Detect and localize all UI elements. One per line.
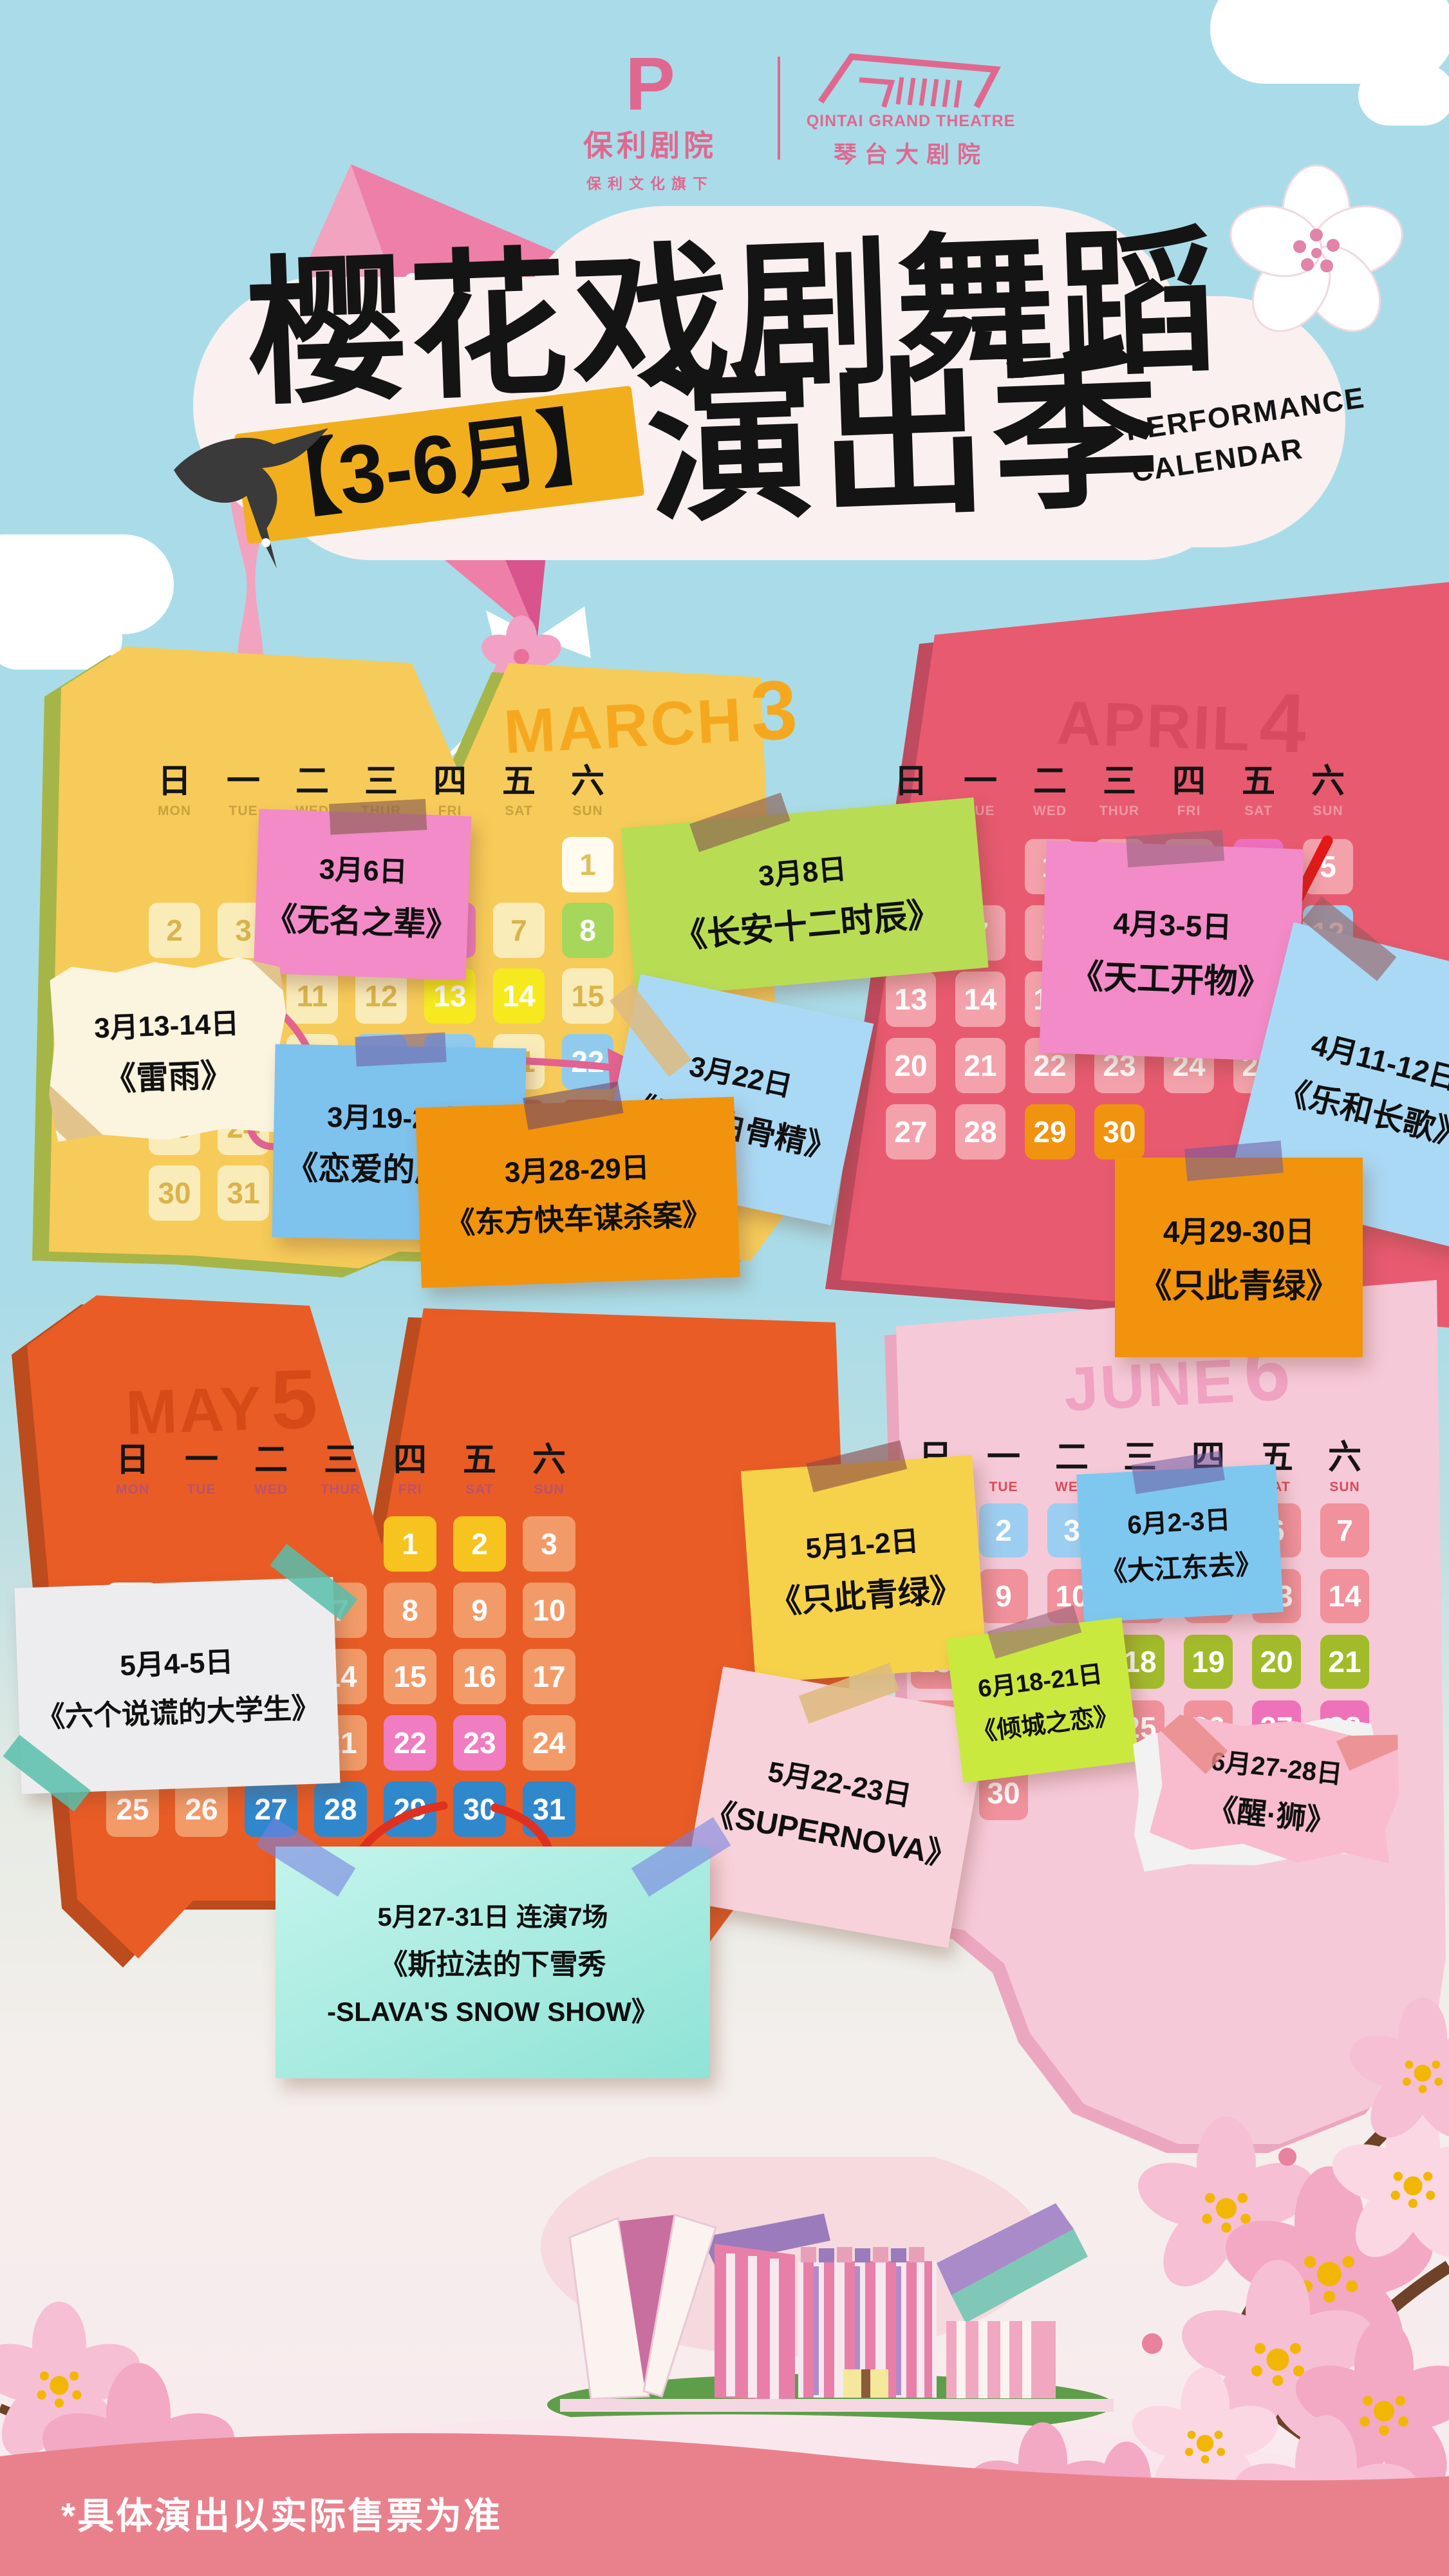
tape-strip <box>329 799 427 835</box>
event-title: 《只此青绿》 <box>1138 1259 1339 1307</box>
footer-disclaimer: *具体演出以实际售票为准 <box>61 2487 502 2539</box>
tape-strip <box>987 1605 1082 1659</box>
event-title: 《雷雨》 <box>103 1049 233 1100</box>
tape-strip <box>256 1817 356 1897</box>
event-date: 5月1-2日 <box>804 1518 920 1566</box>
event-note-e-apr-1: 4月3-5日《天工开物》 <box>1039 840 1304 1062</box>
event-title: 《东方快车谋杀案》 <box>445 1191 713 1243</box>
event-title: 《醒·狮》 <box>1206 1785 1338 1840</box>
event-date: 5月4-5日 <box>119 1639 234 1684</box>
event-title: 《六个说谎的大学生》 <box>36 1684 321 1735</box>
event-title: 《只此青绿》 <box>768 1564 964 1624</box>
event-date: 4月3-5日 <box>1112 899 1232 946</box>
tape-strip <box>689 793 790 852</box>
event-note-e-may-2: 5月4-5日《六个说谎的大学生》 <box>15 1577 341 1794</box>
event-note-e-jun-1: 6月2-3日《大江东去》 <box>1076 1464 1284 1622</box>
event-date: 6月27-28日 <box>1210 1740 1345 1791</box>
event-title: 《倾城之恋》 <box>970 1695 1120 1748</box>
tape-strip <box>1302 896 1397 981</box>
tape-strip <box>1126 830 1224 867</box>
poster: P 保利剧院 保利文化旗下 QINTAI GRAND THEATRE 琴台大剧院 <box>0 0 1449 2576</box>
event-date: 6月18-21日 <box>976 1653 1105 1704</box>
event-title: 《天工开物》 <box>1069 948 1271 1004</box>
event-note-e-apr-3: 4月29-30日《只此青绿》 <box>1115 1158 1363 1357</box>
event-note-e-mar-6: 3月28-29日《东方快车谋杀案》 <box>415 1096 740 1288</box>
event-note-e-mar-1: 3月6日《无名之辈》 <box>254 809 472 980</box>
event-note-e-mar-3: 3月13-14日《雷雨》 <box>42 954 293 1145</box>
event-date: 4月29-30日 <box>1163 1208 1314 1251</box>
event-date: 5月27-31日 连演7场 <box>378 1896 608 1933</box>
event-date: 3月6日 <box>319 845 408 890</box>
event-title: 《长安十二时辰》 <box>671 887 942 958</box>
event-date: 3月8日 <box>756 845 848 894</box>
event-note-e-mar-2: 3月8日《长安十二时辰》 <box>621 798 988 999</box>
event-note-e-jun-2: 6月18-21日《倾城之恋》 <box>946 1617 1139 1783</box>
tape-strip <box>1336 1702 1437 1771</box>
event-title: 《斯拉法的下雪秀 <box>380 1941 606 1982</box>
tape-strip <box>270 1544 357 1621</box>
event-note-e-may-3: 5月22-23日《SUPERNOVA》 <box>682 1666 989 1948</box>
event-date: 3月13-14日 <box>93 1000 239 1046</box>
tape-strip <box>523 1082 623 1130</box>
tape-strip <box>1184 1141 1284 1181</box>
tape-strip <box>807 1440 908 1492</box>
event-title: 《无名之辈》 <box>265 892 459 945</box>
event-date: 3月28-29日 <box>504 1144 650 1190</box>
tape-strip <box>3 1735 91 1812</box>
tape-strip <box>1132 1451 1225 1494</box>
tape-strip <box>610 983 691 1076</box>
tape-strip <box>355 1032 446 1066</box>
event-title: 《大江东去》 <box>1099 1542 1263 1590</box>
event-date: 6月2-3日 <box>1126 1498 1231 1541</box>
